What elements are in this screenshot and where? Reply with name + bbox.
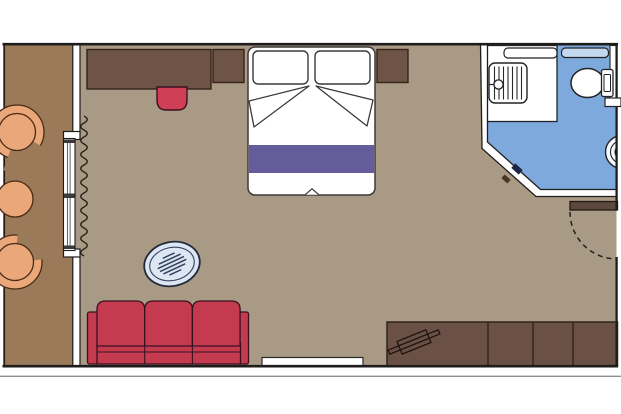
toilet [571, 69, 613, 98]
toilet-bowl [571, 69, 604, 98]
bed-runner [249, 145, 374, 173]
sofa [88, 301, 249, 364]
bathroom-partition-stub [605, 98, 621, 107]
desk-stool [157, 87, 187, 110]
nightstand-left [213, 50, 244, 83]
divider-wall-bottom [73, 256, 80, 367]
desk [87, 50, 211, 90]
towel-shelf [562, 48, 609, 58]
chair-seat [0, 244, 34, 281]
chair-seat [0, 114, 36, 151]
shower [489, 63, 527, 103]
floor-plan-page [0, 0, 621, 414]
pillow-right [315, 51, 370, 84]
pillow-left [253, 51, 308, 84]
balcony-side-table [0, 181, 33, 217]
nightstand-right [377, 50, 408, 83]
floor-plan [0, 0, 621, 414]
double-bed [248, 47, 375, 195]
sofa-cushion [145, 301, 193, 346]
door-frame-tick [64, 140, 75, 144]
shower-shelf [504, 48, 557, 58]
sofa-cushion [97, 301, 145, 346]
wardrobe-cabinets [386, 322, 617, 367]
divider-wall-top [73, 44, 80, 134]
shower-drain [494, 80, 503, 89]
entrance-door [570, 202, 618, 211]
door-frame-tick [64, 246, 75, 250]
door-frame-tick [64, 194, 75, 199]
toilet-tank [602, 70, 614, 97]
sofa-cushion [192, 301, 240, 346]
